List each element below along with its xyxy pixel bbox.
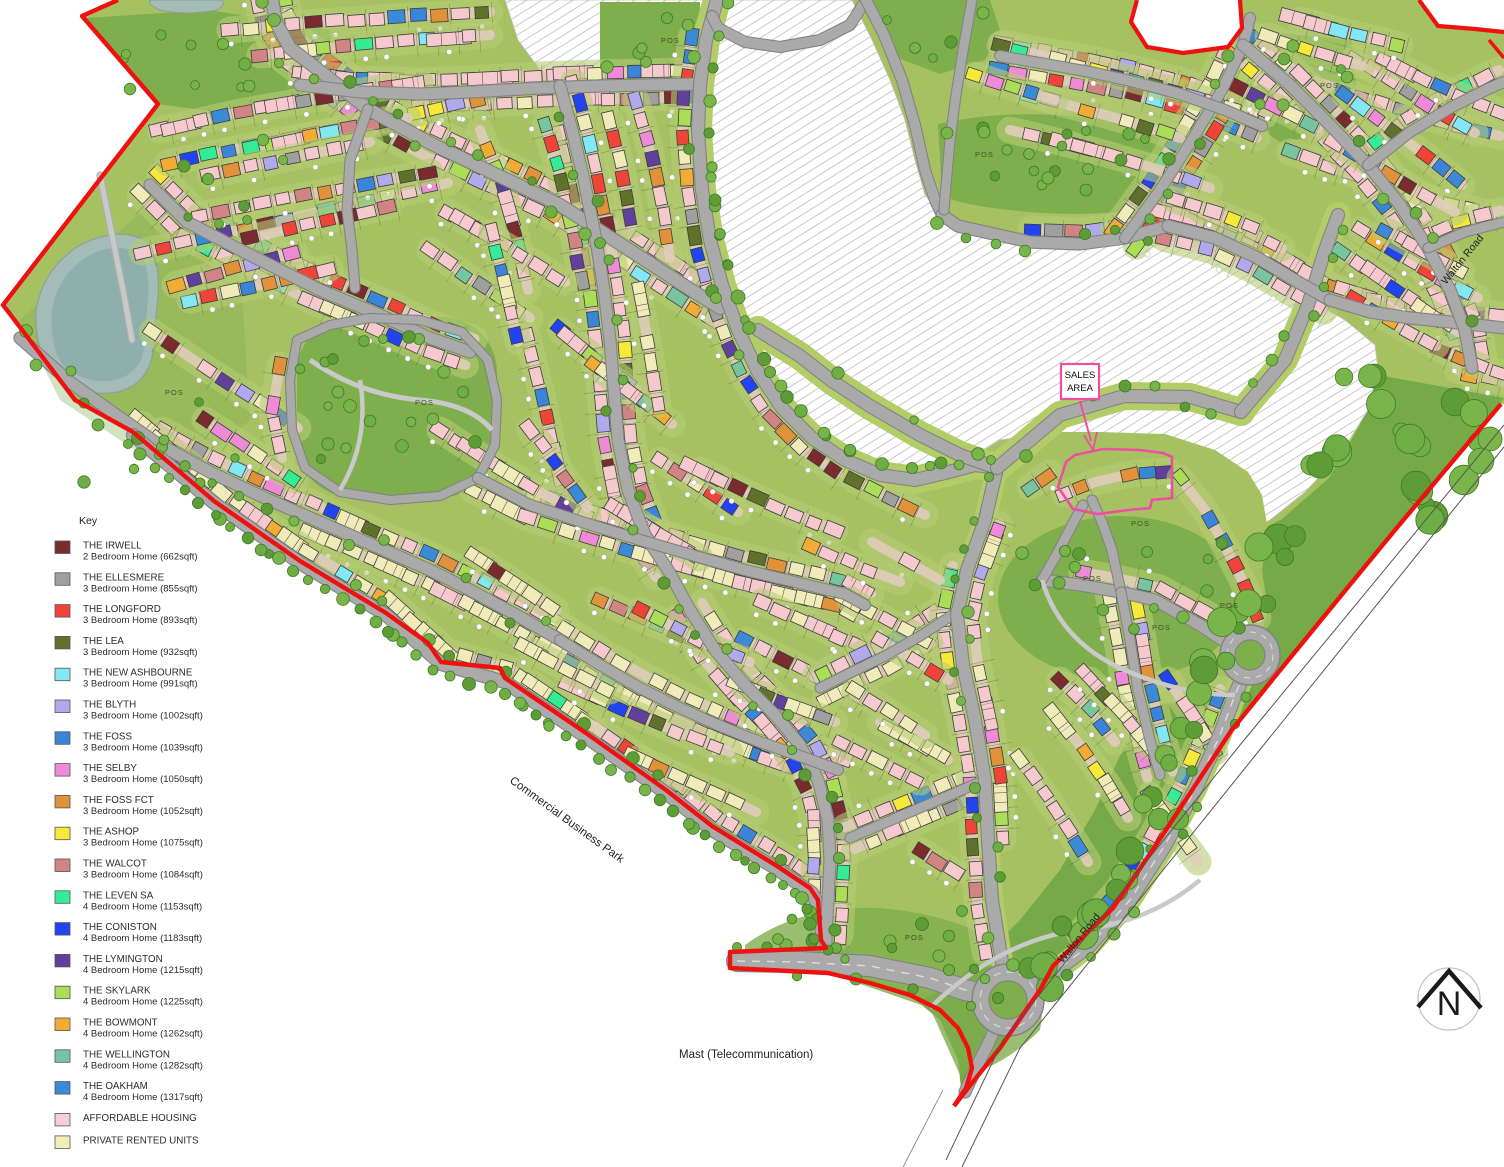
svg-text:POS: POS [415, 398, 434, 407]
svg-text:POS: POS [975, 150, 994, 159]
svg-text:4 Bedroom Home (1262sqft): 4 Bedroom Home (1262sqft) [83, 1029, 203, 1040]
svg-text:POS: POS [1220, 601, 1239, 610]
svg-text:POS: POS [661, 36, 680, 45]
svg-text:3 Bedroom Home (991sqft): 3 Bedroom Home (991sqft) [83, 679, 198, 690]
svg-text:3 Bedroom Home (932sqft): 3 Bedroom Home (932sqft) [83, 647, 198, 658]
svg-text:SALES: SALES [1065, 370, 1096, 381]
svg-text:3 Bedroom Home (1075sqft): 3 Bedroom Home (1075sqft) [83, 838, 203, 849]
svg-text:3 Bedroom Home (893sqft): 3 Bedroom Home (893sqft) [83, 615, 198, 626]
svg-text:4 Bedroom Home (1317sqft): 4 Bedroom Home (1317sqft) [83, 1092, 203, 1103]
svg-text:THE BOWMONT: THE BOWMONT [83, 1018, 158, 1029]
svg-text:THE FOSS: THE FOSS [83, 731, 132, 742]
svg-text:THE LYMINGTON: THE LYMINGTON [83, 954, 163, 965]
svg-text:POS: POS [1320, 81, 1339, 90]
svg-text:THE ASHOP: THE ASHOP [83, 827, 140, 838]
svg-text:3 Bedroom Home (1039sqft): 3 Bedroom Home (1039sqft) [83, 742, 203, 753]
svg-text:THE NEW ASHBOURNE: THE NEW ASHBOURNE [83, 668, 193, 679]
svg-text:4 Bedroom Home (1215sqft): 4 Bedroom Home (1215sqft) [83, 965, 203, 976]
svg-text:Key: Key [79, 515, 98, 527]
svg-text:THE WALCOT: THE WALCOT [83, 859, 147, 870]
svg-text:2 Bedroom Home (662sqft): 2 Bedroom Home (662sqft) [83, 552, 198, 563]
svg-text:Mast (Telecommunication): Mast (Telecommunication) [679, 1049, 813, 1061]
svg-text:THE FOSS FCT: THE FOSS FCT [83, 795, 154, 806]
svg-text:POS: POS [1131, 519, 1150, 528]
svg-text:N: N [1437, 985, 1462, 1023]
svg-text:THE ELLESMERE: THE ELLESMERE [83, 572, 165, 583]
svg-text:POS: POS [165, 388, 184, 397]
svg-text:POS: POS [905, 933, 924, 942]
svg-text:THE LEA: THE LEA [83, 636, 124, 647]
svg-text:3 Bedroom Home (1084sqft): 3 Bedroom Home (1084sqft) [83, 870, 203, 881]
svg-text:POS: POS [1152, 623, 1171, 632]
svg-text:THE SELBY: THE SELBY [83, 763, 137, 774]
svg-text:THE BLYTH: THE BLYTH [83, 700, 136, 711]
svg-text:4 Bedroom Home (1282sqft): 4 Bedroom Home (1282sqft) [83, 1060, 203, 1071]
svg-text:3 Bedroom Home (855sqft): 3 Bedroom Home (855sqft) [83, 583, 198, 594]
svg-text:PRIVATE RENTED UNITS: PRIVATE RENTED UNITS [83, 1135, 199, 1146]
svg-text:AFFORDABLE HOUSING: AFFORDABLE HOUSING [83, 1113, 197, 1124]
svg-text:THE LEVEN SA: THE LEVEN SA [83, 890, 154, 901]
svg-text:3 Bedroom Home (1050sqft): 3 Bedroom Home (1050sqft) [83, 774, 203, 785]
svg-text:THE SKYLARK: THE SKYLARK [83, 986, 151, 997]
svg-text:3 Bedroom Home (1002sqft): 3 Bedroom Home (1002sqft) [83, 711, 203, 722]
svg-text:4 Bedroom Home (1153sqft): 4 Bedroom Home (1153sqft) [83, 901, 202, 912]
svg-text:THE CONISTON: THE CONISTON [83, 922, 157, 933]
svg-text:THE WELLINGTON: THE WELLINGTON [83, 1049, 170, 1060]
svg-text:THE IRWELL: THE IRWELL [83, 541, 142, 552]
svg-text:POS: POS [1083, 574, 1102, 583]
svg-text:THE LONGFORD: THE LONGFORD [83, 604, 161, 615]
svg-text:AREA: AREA [1067, 383, 1094, 394]
svg-text:4 Bedroom Home (1225sqft): 4 Bedroom Home (1225sqft) [83, 997, 203, 1008]
svg-text:4 Bedroom Home (1183sqft): 4 Bedroom Home (1183sqft) [83, 933, 202, 944]
svg-text:THE OAKHAM: THE OAKHAM [83, 1081, 148, 1092]
svg-text:3 Bedroom Home (1052sqft): 3 Bedroom Home (1052sqft) [83, 806, 203, 817]
